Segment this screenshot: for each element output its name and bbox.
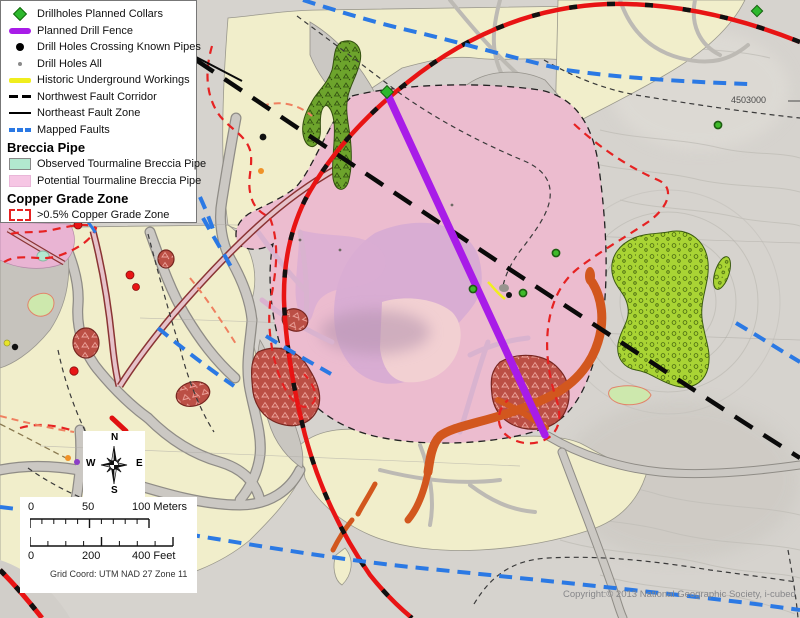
legend-item-potential-pipe: Potential Tourmaline Breccia Pipe xyxy=(7,173,192,190)
map-screenshot: Drillholes Planned Collars Planned Drill… xyxy=(0,0,800,618)
scale-bar: 0 50 100 Meters 0 200 400 Feet Grid Coor… xyxy=(20,497,197,593)
scale-meters-mid: 50 xyxy=(82,501,94,513)
legend-item-drill-fence: Planned Drill Fence xyxy=(7,23,192,40)
scale-meters-zero: 0 xyxy=(28,501,34,513)
legend-item-planned-collars: Drillholes Planned Collars xyxy=(7,6,192,23)
compass-east-label: E xyxy=(136,458,143,469)
legend-item-historic-workings: Historic Underground Workings xyxy=(7,72,192,89)
drill-fence-line-icon xyxy=(7,28,33,34)
black-solid-line-icon xyxy=(7,112,33,114)
purple-marker-dot xyxy=(74,459,80,465)
red-dashed-box-icon xyxy=(7,209,33,221)
blue-dashed-line-icon xyxy=(7,128,33,132)
black-dashed-line-icon xyxy=(7,95,33,98)
pink-unit-corner xyxy=(0,222,74,268)
legend-item-ne-fault-zone: Northeast Fault Zone xyxy=(7,105,192,122)
legend-item-copper-zone: >0.5% Copper Grade Zone xyxy=(7,207,192,224)
legend-label: Potential Tourmaline Breccia Pipe xyxy=(37,175,201,187)
scale-feet-zero: 0 xyxy=(28,550,34,562)
yellow-marker-dot xyxy=(4,340,10,346)
legend-label: Drillholes Planned Collars xyxy=(37,8,163,20)
legend-label: Planned Drill Fence xyxy=(37,25,133,37)
legend-label: Observed Tourmaline Breccia Pipe xyxy=(37,158,206,170)
planned-collar-diamond-icon xyxy=(7,9,33,19)
gray-dot-icon xyxy=(7,62,33,66)
pink-swatch-icon xyxy=(7,175,33,187)
legend-item-nw-fault-corridor: Northwest Fault Corridor xyxy=(7,89,192,106)
legend-label: Drill Holes All xyxy=(37,58,102,70)
legend-header-copper-grade: Copper Grade Zone xyxy=(7,189,192,207)
legend-label: Mapped Faults xyxy=(37,124,110,136)
legend-item-holes-crossing-pipes: Drill Holes Crossing Known Pipes xyxy=(7,39,192,56)
compass-star-icon xyxy=(92,442,136,488)
legend-header-breccia-pipe: Breccia Pipe xyxy=(7,138,192,156)
feet-ruler xyxy=(30,535,190,547)
grid-coord-label: Grid Coord: UTM NAD 27 Zone 11 xyxy=(50,569,187,579)
scale-meters-end: 100 Meters xyxy=(132,501,187,513)
grid-northing-label: 4503000 xyxy=(731,95,766,105)
copyright-notice: Copyright:© 2013 National Geographic Soc… xyxy=(563,589,796,600)
legend-label: Historic Underground Workings xyxy=(37,74,190,86)
mint-swatch-icon xyxy=(7,158,33,170)
meters-ruler xyxy=(30,518,170,530)
compass-rose: N E S W xyxy=(83,431,145,499)
map-legend: Drillholes Planned Collars Planned Drill… xyxy=(0,0,197,223)
scale-feet-end: 400 Feet xyxy=(132,550,175,562)
legend-label: Northwest Fault Corridor xyxy=(37,91,157,103)
legend-label: >0.5% Copper Grade Zone xyxy=(37,209,169,221)
legend-label: Drill Holes Crossing Known Pipes xyxy=(37,41,201,53)
gray-feature-dot xyxy=(499,284,509,292)
yellow-line-icon xyxy=(7,78,33,83)
legend-label: Northeast Fault Zone xyxy=(37,107,140,119)
legend-item-mapped-faults: Mapped Faults xyxy=(7,122,192,139)
black-dot-icon xyxy=(7,43,33,51)
scale-feet-mid: 200 xyxy=(82,550,100,562)
legend-item-observed-pipe: Observed Tourmaline Breccia Pipe xyxy=(7,156,192,173)
legend-item-drill-holes-all: Drill Holes All xyxy=(7,56,192,73)
